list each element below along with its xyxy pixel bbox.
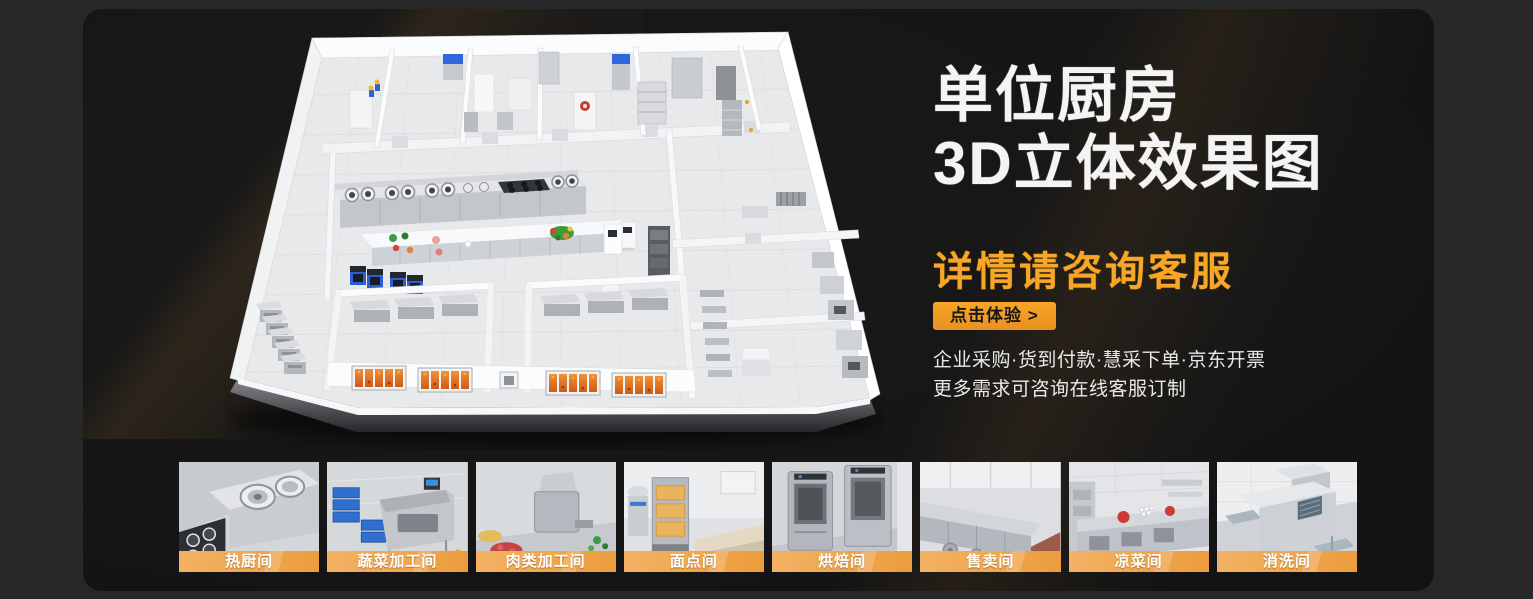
thumbnail-hot-kitchen[interactable]: 热厨间	[179, 462, 319, 572]
hero-title-line1: 单位厨房	[933, 62, 1403, 130]
thumbnail-vegetable-processing[interactable]: 蔬菜加工间	[327, 462, 467, 572]
thumbnail-label: 肉类加工间	[476, 551, 616, 572]
room-thumbnail-list: 热厨间 蔬菜加工间	[179, 462, 1357, 572]
thumbnail-baking-room[interactable]: 烘焙间	[772, 462, 912, 572]
hero-description: 企业采购·货到付款·慧采下单·京东开票 更多需求可咨询在线客服订制	[933, 346, 1403, 404]
hero-desc-line2: 更多需求可咨询在线客服订制	[933, 375, 1403, 404]
thumbnail-label: 凉菜间	[1069, 551, 1209, 572]
thumbnail-cold-dish-room[interactable]: 凉菜间	[1069, 462, 1209, 572]
kitchen-floorplan-3d-illustration	[225, 25, 885, 450]
thumbnail-pastry-room[interactable]: 面点间	[624, 462, 764, 572]
thumbnail-label: 消洗间	[1217, 551, 1357, 572]
thumbnail-label: 热厨间	[179, 551, 319, 572]
cta-button[interactable]: 点击体验 >	[933, 302, 1056, 330]
banner-panel: 单位厨房 3D立体效果图 详情请咨询客服 点击体验 > 企业采购·货到付款·慧采…	[83, 9, 1434, 591]
thumbnail-label: 面点间	[624, 551, 764, 572]
thumbnail-washing-room[interactable]: 消洗间	[1217, 462, 1357, 572]
hero-title: 单位厨房 3D立体效果图	[933, 62, 1403, 198]
hero-title-line2: 3D立体效果图	[933, 130, 1403, 198]
thumbnail-label: 蔬菜加工间	[327, 551, 467, 572]
hero-desc-line1: 企业采购·货到付款·慧采下单·京东开票	[933, 346, 1403, 375]
hero-subtitle: 详情请咨询客服	[933, 250, 1403, 294]
hero-content: 单位厨房 3D立体效果图 详情请咨询客服 点击体验 > 企业采购·货到付款·慧采…	[933, 62, 1403, 404]
thumbnail-label: 售卖间	[920, 551, 1060, 572]
banner-stage: 单位厨房 3D立体效果图 详情请咨询客服 点击体验 > 企业采购·货到付款·慧采…	[0, 0, 1533, 599]
thumbnail-meat-processing[interactable]: 肉类加工间	[476, 462, 616, 572]
thumbnail-label: 烘焙间	[772, 551, 912, 572]
thumbnail-sales-room[interactable]: 售卖间	[920, 462, 1060, 572]
